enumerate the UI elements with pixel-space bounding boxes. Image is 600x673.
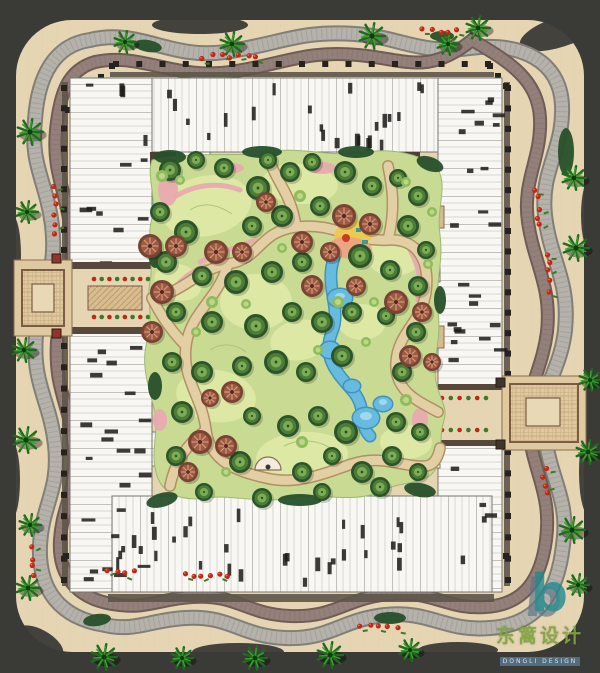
east-entrance-gate bbox=[438, 376, 586, 450]
site-plan-rendering bbox=[0, 0, 600, 673]
west-entrance-gate bbox=[14, 254, 154, 338]
landscape-master-plan: b b 东篱设计 DONGLI DESIGN bbox=[0, 0, 600, 673]
